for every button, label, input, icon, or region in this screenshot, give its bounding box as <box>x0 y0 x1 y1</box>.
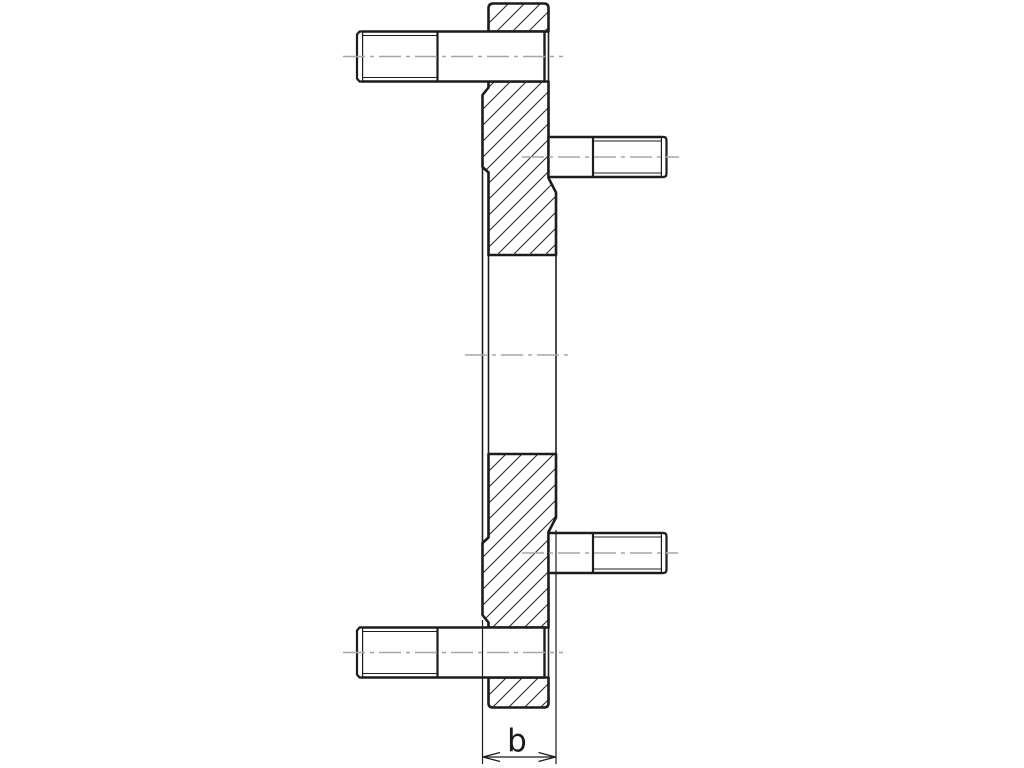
stud-upper-right-chamfer-cap <box>662 137 667 177</box>
flange-upper-web <box>483 82 557 256</box>
stud-lower-right-chamfer-cap <box>662 533 667 573</box>
flange-lower-web <box>483 454 557 628</box>
dimension-label-b: b <box>507 723 527 759</box>
flange-top-rim <box>489 4 549 32</box>
flange-bottom-rim <box>489 678 549 708</box>
drawing-canvas: b <box>0 0 1024 768</box>
technical-drawing: b <box>0 0 1024 768</box>
